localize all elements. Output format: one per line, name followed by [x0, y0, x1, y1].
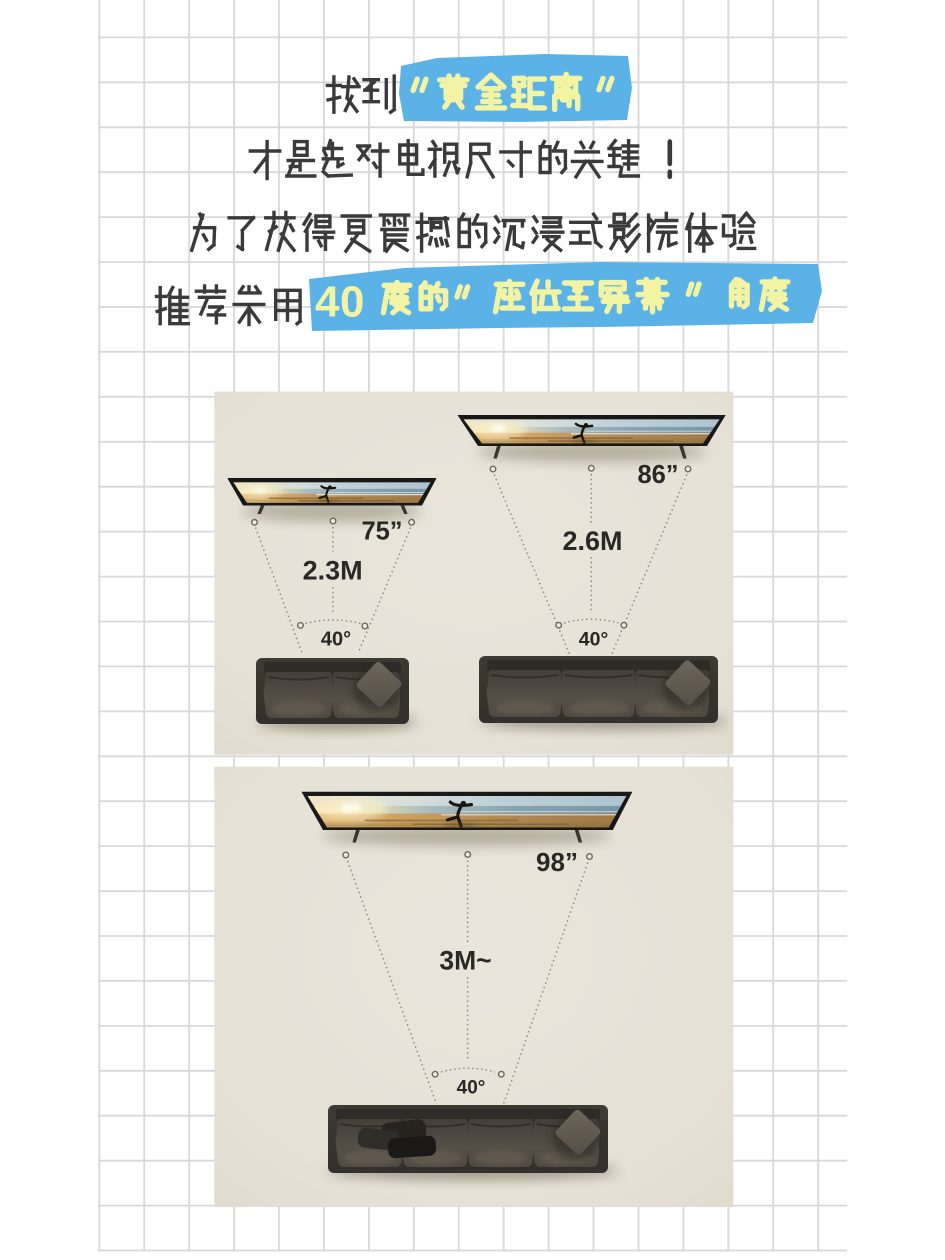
svg-text:40°: 40° [457, 1078, 486, 1099]
svg-text:98”: 98” [536, 847, 578, 877]
svg-text:40°: 40° [321, 629, 351, 651]
svg-text:2.6M: 2.6M [562, 526, 622, 556]
svg-text:86”: 86” [637, 461, 678, 489]
svg-text:2.3M: 2.3M [303, 556, 363, 586]
svg-text:40°: 40° [579, 629, 609, 651]
svg-text:3M~: 3M~ [439, 946, 491, 976]
svg-text:40: 40 [315, 278, 365, 327]
svg-text:75”: 75” [361, 518, 402, 546]
